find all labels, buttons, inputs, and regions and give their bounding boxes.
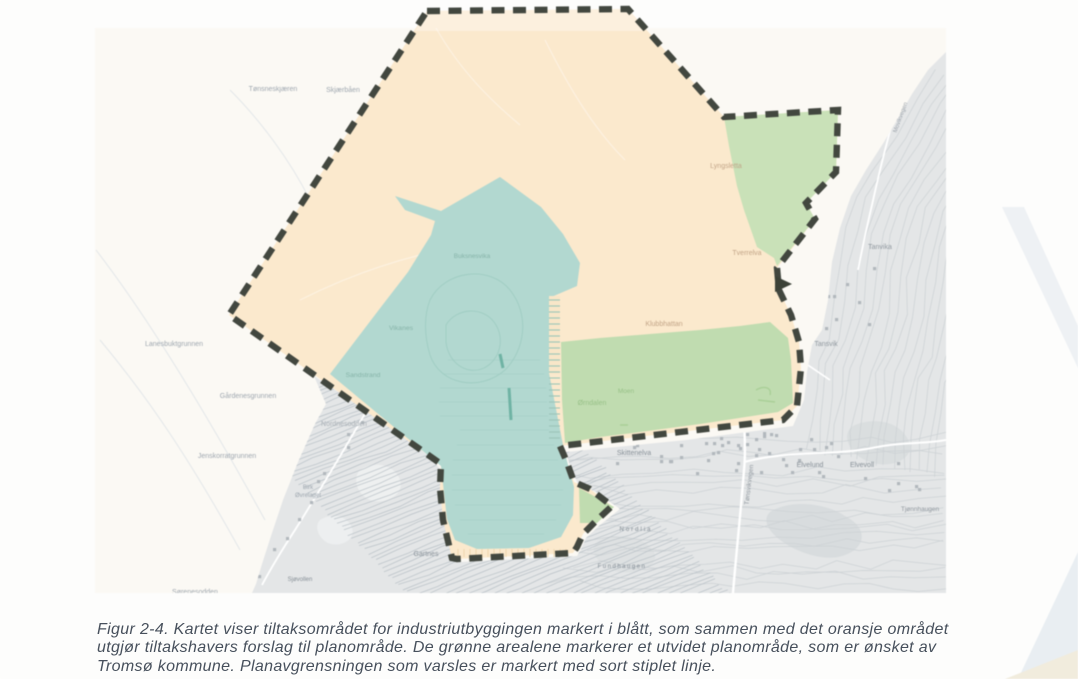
svg-text:Fundhaugen: Fundhaugen [598,564,647,570]
svg-text:Nordlia: Nordlia [619,527,652,533]
svg-text:Øvrelaget: Øvrelaget [295,493,321,499]
svg-text:Tønsneskjæren: Tønsneskjæren [249,86,298,93]
svg-text:Buksnesvika: Buksnesvika [454,253,491,260]
svg-text:Tjønnhaugen: Tjønnhaugen [901,506,940,513]
svg-text:Moen: Moen [618,388,635,395]
svg-text:Skjærbåen: Skjærbåen [326,86,360,94]
svg-text:Sandstrand: Sandstrand [346,372,381,379]
svg-text:Sjøvollen: Sjøvollen [288,577,313,583]
svg-text:Tanvika: Tanvika [868,244,892,251]
svg-text:Lanesbuktgrunnen: Lanesbuktgrunnen [145,341,203,348]
svg-text:Ørndalen: Ørndalen [578,400,607,407]
svg-text:Tansvik: Tansvik [814,341,838,348]
svg-text:Elvevoll: Elvevoll [850,462,875,469]
svg-text:Tverrelva: Tverrelva [732,250,761,257]
svg-text:Skittenelva: Skittenelva [617,450,651,457]
svg-text:Birk: Birk [303,485,314,491]
svg-text:Nordnesodden: Nordnesodden [321,421,367,428]
svg-text:Gartnes: Gartnes [414,551,439,558]
svg-text:Vikanes: Vikanes [389,325,414,332]
svg-text:Klubbhattan: Klubbhattan [645,321,682,328]
svg-text:Gårdenesgrunnen: Gårdenesgrunnen [220,392,277,400]
svg-text:Jenskorratgrunnen: Jenskorratgrunnen [198,453,256,460]
svg-text:Elvelund: Elvelund [797,462,824,469]
svg-text:Lyngsletta: Lyngsletta [710,163,742,170]
